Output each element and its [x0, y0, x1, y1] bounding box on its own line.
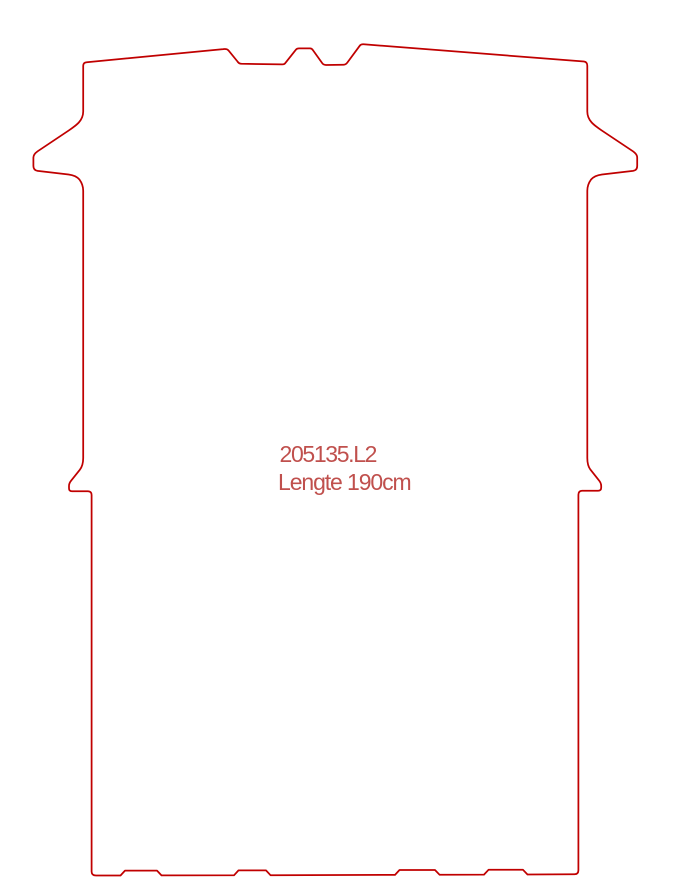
- svg-text:Lengte 190cm: Lengte 190cm: [278, 469, 411, 495]
- svg-text:205135.L2: 205135.L2: [280, 441, 377, 467]
